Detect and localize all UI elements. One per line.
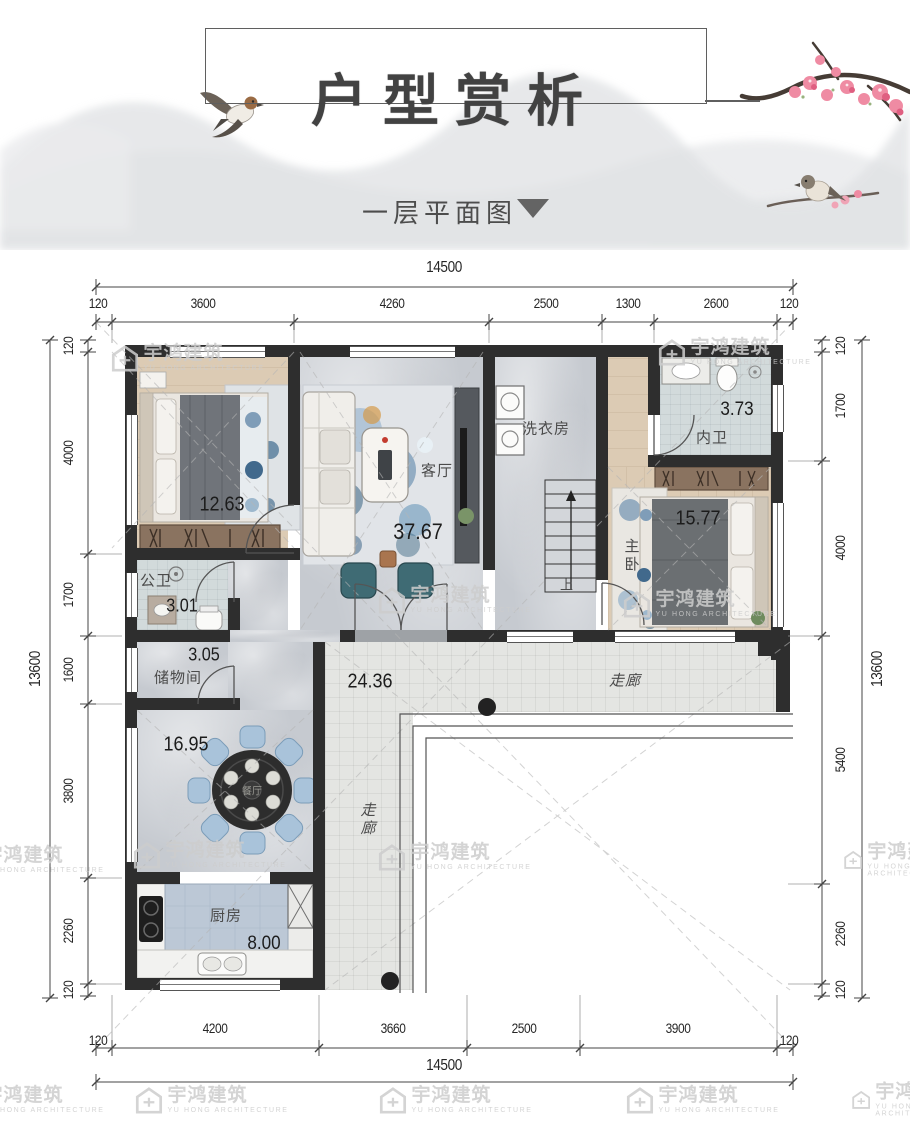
watermark: 宇鸿建筑YU HONG ARCHITECTURE [378,586,531,614]
corridor-top-label: 走廊 [609,670,641,691]
inner-bath-area-label: 3.73 [720,399,753,421]
window-innerbath-right [772,385,784,432]
dim-top-2: 4260 [380,295,405,311]
public-bath-name-label: 公卫 [140,570,172,591]
dim-left-1: 4000 [60,441,76,466]
porch-area-label: 24.36 [347,671,392,694]
stairs-up-label: 上 [560,575,574,594]
dim-top-4: 1300 [616,295,641,311]
hall2-floor [228,642,313,710]
wall-pubbath-right [228,598,240,630]
wall-storage-bottom [125,698,240,710]
wall-dining-right [313,642,325,990]
wall-innerbath-bottom [648,455,783,467]
dim-top-6: 120 [780,295,799,311]
wall-mid-1 [125,630,230,642]
dim-left-0: 120 [60,337,76,356]
entry-threshold [355,630,447,642]
watermark: 宇鸿建筑YU HONG ARCHITECTURE [135,1086,288,1114]
dim-top-0: 120 [89,295,108,311]
laundry-name-label: 洗衣房 [522,418,570,439]
wall-bedroom1-living [288,345,300,505]
dim-right-3: 5400 [832,748,848,773]
wall-kitchen-div-l [125,872,180,884]
plum-blossom-branch [742,43,910,120]
title-frame-line [705,100,760,102]
dim-bottom-0: 120 [89,1032,108,1048]
public-bath-area-label: 3.01 [166,596,198,617]
wall-kitchen-div-r [270,872,325,884]
dim-left-2: 1700 [60,583,76,608]
dim-bottom-2: 3660 [381,1020,406,1036]
window-pubbath-left [126,573,138,617]
dim-top-1: 3600 [191,295,216,311]
kitchen-area-label: 8.00 [247,933,280,955]
dim-bottom-4: 3900 [666,1020,691,1036]
wall-mid-3 [447,630,507,642]
master-area-label: 15.77 [675,508,720,531]
dim-left-total: 13600 [27,651,45,687]
window-kitchen-bottom [160,979,280,991]
floor-plan-page: 户型赏析 一层平面图 [0,0,910,1123]
wall-living-laundry [483,345,495,570]
dim-right-1: 1700 [832,394,848,419]
dim-right-4: 2260 [832,922,848,947]
wall-mid-5 [573,630,615,642]
corridor-side-label: 走廊 [357,802,378,838]
master-hall-floor [608,357,648,467]
watermark: 宇鸿建筑YU HONG ARCHITECTURE [623,590,776,618]
watermark: 宇鸿建筑YU HONG ARCHITECTURE [658,338,811,366]
storage-name-label: 储物间 [154,667,202,688]
bedroom1-floor [137,357,288,548]
dim-right-5: 120 [832,981,848,1000]
yuhong-logo-icon [111,345,138,372]
wall-mid-2 [340,630,355,642]
dim-right-0: 120 [832,337,848,356]
dining-table-label: 餐厅 [242,783,262,798]
watermark: 宇鸿建筑YU HONG ARCHITECTURE [111,344,264,372]
porch-top-floor [325,642,790,712]
window-living-top [350,346,455,358]
triangle-down-icon [517,199,549,218]
dim-bottom-3: 2500 [512,1020,537,1036]
dim-top-3: 2500 [534,295,559,311]
wall-porch-stub-1 [758,642,790,656]
dim-left-6: 120 [60,981,76,1000]
plan-subtitle: 一层平面图 [362,193,517,230]
window-stairhall-bottom [507,631,573,643]
dim-left-4: 3800 [60,779,76,804]
watermark: 宇鸿建筑YU HONG ARCHITECTURE [379,1086,532,1114]
passage-floor [230,630,340,642]
inner-bath-name-label: 内卫 [696,427,728,448]
window-storage-left [126,648,138,692]
dim-bottom-5: 120 [780,1032,799,1048]
watermark: 宇鸿建筑YU HONG ARCHITECTURE [378,843,531,871]
page-title: 户型赏析 [311,57,599,138]
wall-bedroom1-bottom [125,548,300,560]
dim-right-2: 4000 [832,536,848,561]
dim-top-5: 2600 [704,295,729,311]
dining-area-label: 16.95 [163,734,208,757]
kitchen-name-label: 厨房 [210,905,242,926]
window-master-bottom [615,631,735,643]
watermark: 宇鸿建筑YU HONG ARCHITECTURE [133,841,286,869]
wall-mid-7 [735,630,790,642]
wall-stair-master [596,357,608,580]
watermark: 宇鸿建筑YU HONG ARCHITECTURE [852,1083,910,1118]
dim-right-total: 13600 [869,651,887,687]
master-name-label: 主卧 [621,538,642,574]
dim-bottom-1: 4200 [203,1020,228,1036]
sparrow-bird-right [768,175,878,209]
dim-top-total: 14500 [426,259,462,277]
window-bedroom1-left [126,415,138,525]
watermark: 宇鸿建筑YU HONG ARCHITECTURE [626,1086,779,1114]
bedroom1-area-label: 12.63 [199,494,244,517]
watermark: 宇鸿建筑YU HONG ARCHITECTURE [0,1086,105,1114]
living-area-label: 37.67 [393,519,443,545]
dim-bottom-total: 14500 [426,1057,462,1075]
watermark: 宇鸿建筑YU HONG ARCHITECTURE [844,843,910,878]
storage-area-label: 3.05 [188,645,220,666]
wall-porch-stub-2 [776,656,790,712]
kitchen-floor [137,884,313,978]
watermark: 宇鸿建筑YU HONG ARCHITECTURE [0,846,105,874]
dim-left-5: 2260 [60,919,76,944]
dim-left-3: 1600 [60,658,76,683]
living-name-label: 客厅 [421,460,453,481]
